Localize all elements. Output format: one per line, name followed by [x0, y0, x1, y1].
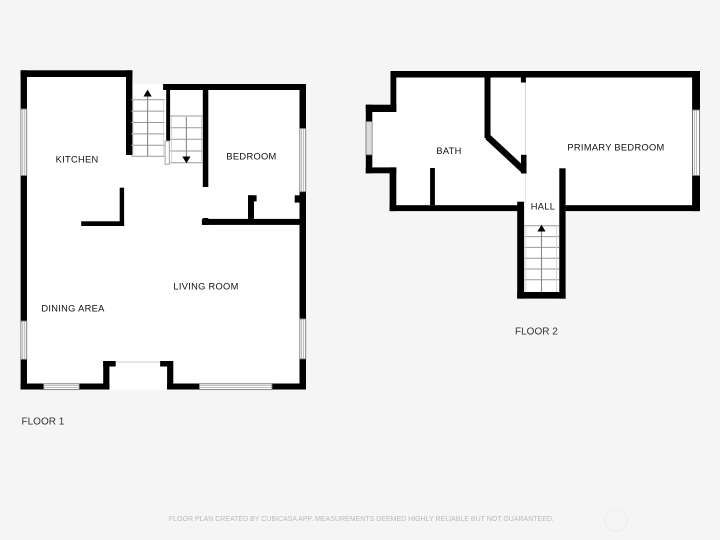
svg-text:FLOOR PLAN CREATED BY CUBICASA: FLOOR PLAN CREATED BY CUBICASA APP. MEAS… [169, 516, 554, 523]
svg-text:BATH: BATH [436, 146, 461, 156]
svg-text:FLOOR 2: FLOOR 2 [515, 327, 558, 338]
svg-text:KITCHEN: KITCHEN [56, 154, 99, 164]
svg-text:FLOOR 1: FLOOR 1 [22, 417, 65, 428]
svg-text:DINING AREA: DINING AREA [41, 304, 105, 314]
svg-text:PRIMARY BEDROOM: PRIMARY BEDROOM [567, 143, 664, 153]
svg-text:LIVING ROOM: LIVING ROOM [173, 281, 238, 291]
svg-text:HALL: HALL [531, 201, 555, 211]
svg-text:BEDROOM: BEDROOM [226, 151, 276, 161]
